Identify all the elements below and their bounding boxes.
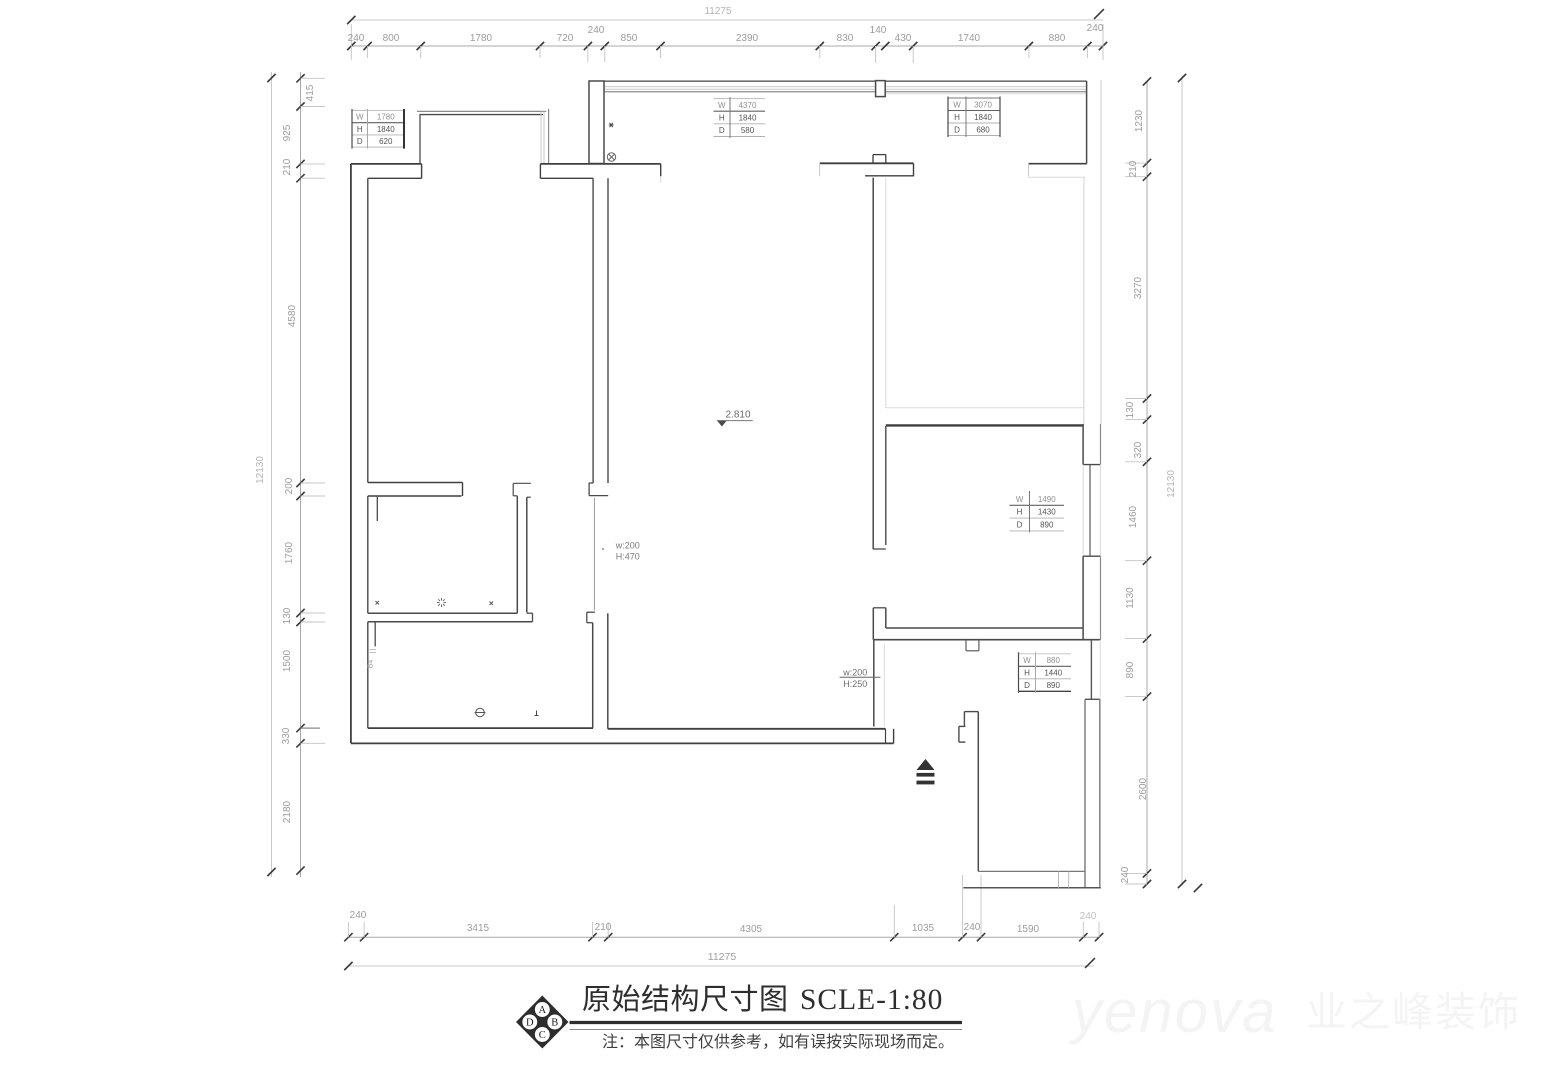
svg-text:720: 720: [557, 33, 574, 44]
svg-text:业之峰装饰: 业之峰装饰: [1306, 989, 1521, 1035]
svg-text:1760: 1760: [284, 541, 295, 564]
svg-text:D: D: [526, 1018, 534, 1029]
svg-text:12130: 12130: [1166, 470, 1177, 498]
svg-text:W: W: [356, 113, 364, 122]
svg-text:B4: B4: [368, 660, 375, 669]
svg-text:2390: 2390: [736, 33, 759, 44]
svg-text:320: 320: [1133, 441, 1144, 458]
svg-text:880: 880: [1049, 33, 1066, 44]
svg-text:240: 240: [350, 910, 367, 921]
svg-text:D: D: [357, 137, 363, 146]
svg-text:240: 240: [964, 922, 981, 933]
svg-text:1460: 1460: [1128, 505, 1139, 528]
svg-text:240: 240: [348, 33, 365, 44]
svg-text:580: 580: [741, 126, 755, 135]
svg-text:240: 240: [1120, 866, 1131, 883]
svg-text:D: D: [954, 125, 960, 134]
svg-text:2180: 2180: [282, 800, 293, 823]
svg-text:1740: 1740: [958, 33, 981, 44]
svg-text:680: 680: [976, 125, 990, 134]
svg-text:240: 240: [1080, 911, 1097, 922]
svg-text:1490: 1490: [1038, 495, 1056, 504]
svg-text:240: 240: [588, 25, 605, 36]
svg-text:210: 210: [595, 922, 612, 933]
svg-text:130: 130: [1125, 401, 1136, 418]
svg-text:200: 200: [284, 477, 295, 494]
svg-text:1780: 1780: [470, 33, 493, 44]
svg-text:210: 210: [282, 158, 293, 175]
svg-text:4370: 4370: [739, 101, 757, 110]
svg-text:yenova: yenova: [1068, 978, 1277, 1045]
svg-text:11275: 11275: [704, 6, 732, 17]
svg-text:3270: 3270: [1133, 276, 1144, 299]
svg-text:1130: 1130: [1125, 587, 1136, 609]
svg-text:SCLE-1:80: SCLE-1:80: [800, 984, 943, 1016]
svg-text:H: H: [1024, 669, 1030, 678]
svg-text:430: 430: [895, 33, 912, 44]
svg-text:H: H: [1017, 508, 1023, 517]
svg-text:240: 240: [1087, 23, 1104, 34]
svg-text:w:200: w:200: [615, 541, 640, 551]
svg-text:1430: 1430: [1038, 508, 1056, 517]
svg-text:D: D: [1024, 681, 1030, 690]
svg-text:D: D: [1017, 521, 1023, 530]
svg-text:12130: 12130: [255, 456, 266, 484]
svg-text:2600: 2600: [1138, 777, 1149, 800]
svg-text:W: W: [1023, 656, 1031, 665]
svg-text:原始结构尺寸图: 原始结构尺寸图: [582, 983, 789, 1016]
svg-text:1780: 1780: [377, 113, 395, 122]
svg-text:H: H: [719, 114, 725, 123]
svg-text:3415: 3415: [467, 923, 490, 934]
svg-text:4580: 4580: [287, 304, 298, 327]
svg-text:1840: 1840: [974, 113, 992, 122]
svg-text:210: 210: [1128, 160, 1139, 177]
svg-text:1500: 1500: [282, 649, 293, 672]
svg-text:D: D: [719, 126, 725, 135]
svg-text:注：本图尺寸仅供参考，如有误按实际现场而定。: 注：本图尺寸仅供参考，如有误按实际现场而定。: [602, 1033, 954, 1051]
svg-text:850: 850: [621, 33, 638, 44]
svg-text:130: 130: [282, 607, 293, 624]
svg-text:1035: 1035: [912, 923, 935, 934]
svg-text:W: W: [953, 100, 961, 109]
svg-text:H: H: [357, 125, 363, 134]
svg-text:A: A: [539, 1005, 547, 1016]
svg-text:2.810: 2.810: [725, 410, 750, 421]
svg-text:11275: 11275: [708, 951, 737, 963]
svg-text:1590: 1590: [1017, 924, 1040, 935]
svg-text:880: 880: [1047, 656, 1061, 665]
svg-text:1440: 1440: [1044, 669, 1062, 678]
svg-text:890: 890: [1047, 681, 1061, 690]
svg-text:415: 415: [305, 84, 316, 101]
svg-text:W: W: [718, 101, 726, 110]
svg-text:W: W: [1016, 495, 1024, 504]
svg-text:H: H: [954, 113, 960, 122]
svg-text:890: 890: [1125, 661, 1136, 678]
svg-text:140: 140: [870, 25, 887, 36]
svg-text:1230: 1230: [1134, 109, 1145, 132]
svg-text:925: 925: [282, 124, 293, 141]
svg-text:1840: 1840: [377, 125, 395, 134]
svg-text:C: C: [539, 1030, 546, 1041]
svg-text:1840: 1840: [739, 114, 757, 123]
svg-text:890: 890: [1040, 521, 1054, 530]
svg-text:w:200: w:200: [842, 667, 867, 677]
svg-text:330: 330: [281, 727, 292, 744]
svg-text:B: B: [551, 1018, 558, 1029]
svg-text:4305: 4305: [740, 924, 763, 935]
svg-text:800: 800: [383, 33, 400, 44]
svg-text:H:250: H:250: [843, 679, 867, 689]
svg-text:830: 830: [837, 33, 854, 44]
svg-text:H:470: H:470: [616, 552, 640, 562]
svg-text:620: 620: [379, 137, 393, 146]
svg-text:3070: 3070: [974, 100, 992, 109]
